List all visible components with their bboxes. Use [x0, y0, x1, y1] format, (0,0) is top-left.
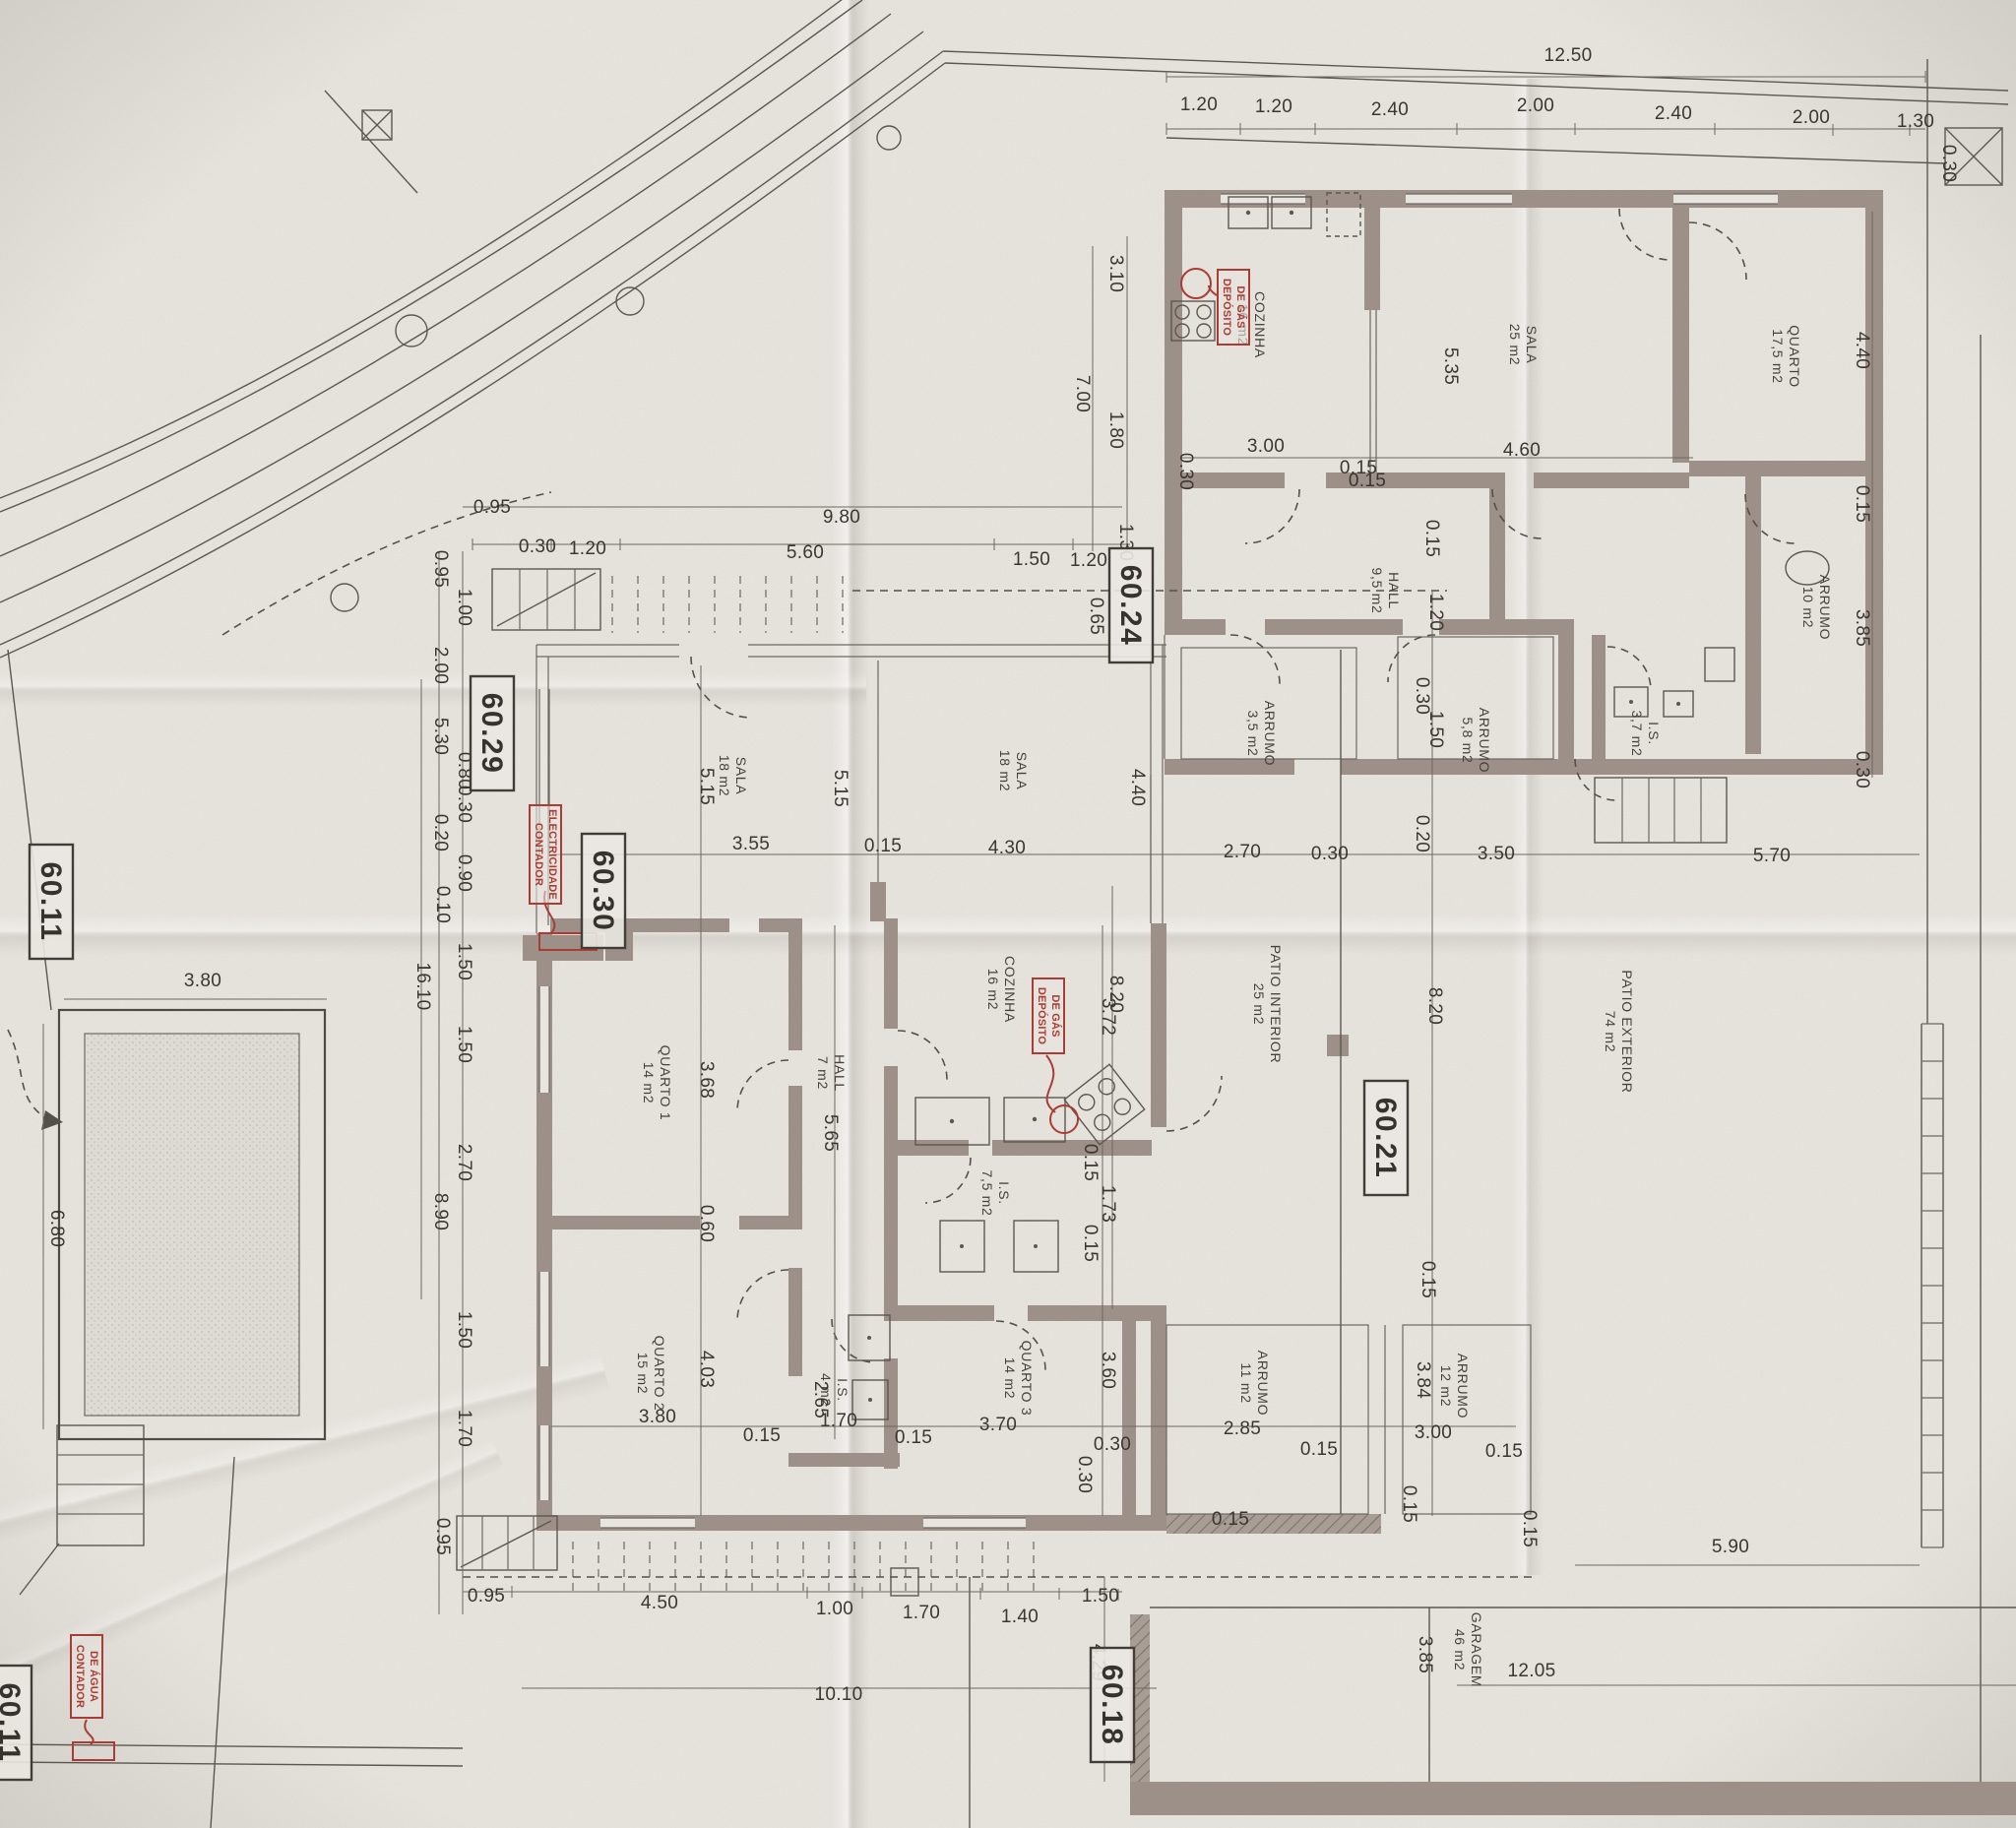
floor-plan-sheet: COZINHA16 m2SALA25 m2QUARTO17,5 m2HALL9,… — [0, 0, 2016, 1828]
red-annotation-line2: DE GÁS — [1234, 285, 1247, 328]
dimension-label: 4.30 — [988, 838, 1026, 858]
room-area: 10 m2 — [1800, 587, 1816, 628]
room-area: 3,7 m2 — [1629, 711, 1645, 757]
dimension-label: 5.90 — [1712, 1537, 1749, 1557]
dimension-label: 3.72 — [1098, 998, 1118, 1036]
room-area: 18 m2 — [717, 755, 732, 796]
dimension-label: 0.15 — [1300, 1439, 1338, 1460]
room-area: 16 m2 — [985, 969, 1001, 1010]
reference-marker-label: 60.11 — [34, 862, 67, 942]
room-name: HALL — [832, 1054, 848, 1092]
dimension-label: 4.03 — [696, 1351, 717, 1388]
dimension-label: 0.15 — [1399, 1485, 1419, 1523]
dimension-label: 4.60 — [1503, 440, 1541, 461]
dimension-label: 1.00 — [454, 589, 474, 626]
dimension-label: 1.20 — [1070, 550, 1107, 571]
dimension-label: 5.60 — [787, 542, 824, 563]
reference-marker: 60.29 — [471, 676, 514, 790]
reference-marker: 60.11 — [30, 845, 73, 959]
red-annotation-line1: CONTADOR — [533, 823, 544, 886]
dimension-label: 1.80 — [1105, 411, 1126, 449]
reference-marker-label: 60.18 — [1096, 1665, 1128, 1746]
dimension-label: 5.15 — [696, 768, 717, 805]
room-name: I.S. — [996, 1181, 1012, 1205]
dimension-label: 2.40 — [1655, 103, 1692, 124]
dimension-label: 0.30 — [1938, 145, 1959, 182]
dimension-label: 1.50 — [1082, 1586, 1119, 1607]
dimension-label: 2.00 — [1793, 107, 1830, 128]
dimension-label: 0.10 — [432, 886, 453, 923]
dimension-label: 3.80 — [184, 971, 221, 991]
dimension-label: 0.15 — [1080, 1144, 1101, 1181]
room-area: 14 m2 — [641, 1062, 657, 1103]
dimension-label: 0.90 — [454, 854, 474, 892]
dimension-label: 0.15 — [1212, 1509, 1249, 1530]
dimension-label: 10.10 — [814, 1684, 862, 1705]
dimension-label: 3.70 — [979, 1415, 1017, 1435]
dimension-label: 3.10 — [1105, 255, 1126, 292]
room-name: PATIO EXTERIOR — [1619, 970, 1635, 1093]
dimension-label: 1.50 — [1013, 549, 1050, 570]
room-name: ARRUMO — [1262, 701, 1278, 766]
dimension-label: 16.10 — [412, 962, 433, 1010]
dimension-label: 0.30 — [1094, 1434, 1131, 1455]
dimension-label: 2.85 — [1224, 1418, 1261, 1439]
dimension-label: 0.30 — [1852, 751, 1872, 788]
dimension-label: 5.70 — [1753, 846, 1791, 866]
dimension-label: 0.15 — [1519, 1510, 1540, 1547]
room-name: SALA — [733, 757, 749, 795]
room-area: 9,5 m2 — [1369, 568, 1385, 614]
dimension-label: 3.50 — [1478, 844, 1515, 864]
dimension-label: 5.30 — [430, 718, 451, 755]
dimension-label: 2.00 — [1517, 95, 1554, 116]
dimension-label: 0.15 — [895, 1427, 932, 1448]
dimension-label: 0.15 — [1080, 1225, 1101, 1262]
dimension-label: 3.00 — [1247, 436, 1285, 457]
red-annotation-line1: DEPÓSITO — [1036, 987, 1048, 1044]
dimension-label: 0.15 — [1485, 1441, 1523, 1462]
room-name: I.S. — [835, 1378, 850, 1402]
room-label: ARRUMO3,5 m2 — [1245, 701, 1278, 766]
dimension-label: 4.50 — [641, 1593, 678, 1613]
room-name: ARRUMO — [1455, 1354, 1471, 1418]
dimension-label: 2.40 — [1371, 99, 1409, 120]
dimension-label: 0.15 — [743, 1425, 781, 1446]
dimension-label: 3.55 — [732, 834, 770, 854]
reference-marker-label: 60.24 — [1114, 565, 1147, 647]
room-area: 15 m2 — [635, 1353, 651, 1394]
dimension-label: 3.68 — [696, 1061, 717, 1099]
dimension-label: 5.65 — [820, 1114, 841, 1152]
dimension-label: 1.20 — [1255, 96, 1292, 117]
red-annotation-line1: DEPÓSITO — [1221, 279, 1233, 336]
dimension-label: 8.20 — [1424, 987, 1445, 1025]
room-area: 17,5 m2 — [1770, 329, 1786, 384]
room-label: HALL9,5 m2 — [1369, 568, 1402, 614]
dimension-label: 1.70 — [820, 1411, 857, 1431]
floor-plan-drawing: COZINHA16 m2SALA25 m2QUARTO17,5 m2HALL9,… — [0, 0, 2016, 1828]
room-label: SALA18 m2 — [997, 750, 1030, 791]
room-area: 14 m2 — [1002, 1357, 1018, 1399]
dimension-label: 9.80 — [823, 507, 860, 528]
dimension-label: 1.30 — [1897, 111, 1934, 132]
reference-marker-label: 60.11 — [0, 1683, 26, 1763]
dimension-label: 1.20 — [569, 538, 606, 559]
reference-marker: 60.21 — [1364, 1081, 1408, 1195]
red-annotation: DEPÓSITODE GÁS — [1033, 978, 1064, 1053]
dimension-label: 3.00 — [1415, 1422, 1452, 1443]
dimension-label: 0.30 — [1311, 844, 1349, 864]
room-name: ARRUMO — [1817, 575, 1833, 640]
dimension-label: 1.00 — [816, 1599, 853, 1619]
red-annotation: CONTADORELECTRICIDADE — [530, 805, 561, 904]
dimension-label: 6.80 — [46, 1210, 67, 1247]
dimension-label: 8.90 — [430, 1193, 451, 1230]
room-name: SALA — [1524, 326, 1540, 364]
room-area: 25 m2 — [1507, 324, 1523, 365]
room-name: COZINHA — [1002, 956, 1018, 1023]
room-name: SALA — [1014, 752, 1030, 790]
dimension-label: 2.70 — [454, 1144, 474, 1181]
room-name: I.S. — [1646, 722, 1662, 745]
dimension-label: 7.00 — [1072, 375, 1093, 412]
room-name: QUARTO 1 — [658, 1045, 673, 1121]
room-name: PATIO INTERIOR — [1268, 945, 1284, 1064]
dimension-label: 1.20 — [1425, 594, 1446, 631]
dimension-label: 1.50 — [454, 1026, 474, 1063]
dimension-label: 0.95 — [468, 1586, 505, 1607]
room-name: QUARTO 2 — [652, 1336, 667, 1412]
reference-marker: 60.11 — [0, 1666, 31, 1780]
room-name: QUARTO — [1787, 325, 1802, 388]
dimension-label: 0.20 — [430, 814, 451, 851]
room-area: 18 m2 — [997, 750, 1013, 791]
room-area: 7,5 m2 — [979, 1170, 995, 1217]
dimension-label: 12.05 — [1507, 1661, 1555, 1681]
red-annotation: CONTADORDE ÁGUA — [71, 1635, 102, 1718]
reference-marker-label: 60.30 — [587, 851, 619, 932]
dimension-label: 3.85 — [1852, 609, 1872, 647]
dimension-label: 0.15 — [1421, 520, 1442, 557]
room-name: QUARTO 3 — [1019, 1341, 1035, 1417]
dimension-label: 3.84 — [1413, 1361, 1433, 1399]
room-area: 11 m2 — [1238, 1362, 1254, 1403]
dimension-label: 3.60 — [1098, 1352, 1118, 1389]
red-annotation-line2: DE ÁGUA — [88, 1651, 100, 1702]
dimension-label: 12.50 — [1543, 45, 1592, 66]
room-label: HALL7 m2 — [815, 1054, 848, 1092]
room-area: 7 m2 — [815, 1056, 831, 1090]
dimension-label: 2.00 — [430, 647, 451, 684]
dimension-label: 0.60 — [696, 1205, 717, 1242]
dimension-label: 0.95 — [432, 1518, 453, 1555]
red-annotation-line2: ELECTRICIDADE — [546, 809, 558, 900]
room-area: 5,8 m2 — [1460, 718, 1476, 764]
room-area: 3,5 m2 — [1245, 711, 1261, 757]
reference-marker: 60.30 — [582, 834, 625, 948]
room-name: ARRUMO — [1255, 1351, 1271, 1416]
dimension-label: 0.95 — [473, 497, 511, 518]
room-label: QUARTO17,5 m2 — [1770, 325, 1802, 388]
red-annotation-line1: CONTADOR — [74, 1645, 86, 1708]
dimension-label: 1.50 — [454, 1311, 474, 1349]
room-label: SALA18 m2 — [717, 755, 749, 796]
red-annotation: DEPÓSITODE GÁS — [1218, 270, 1249, 345]
room-area: 74 m2 — [1603, 1011, 1618, 1052]
reference-marker: 60.18 — [1091, 1648, 1134, 1762]
reference-marker-label: 60.29 — [475, 693, 508, 775]
dimension-label: 0.30 — [519, 536, 556, 557]
reference-marker-label: 60.21 — [1369, 1098, 1402, 1179]
dimension-label: 1.50 — [1425, 711, 1446, 748]
dimension-label: 0.15 — [1349, 471, 1386, 491]
room-label: SALA25 m2 — [1507, 324, 1540, 365]
dimension-label: 0.30 — [1175, 453, 1196, 490]
dimension-label: 0.65 — [1086, 598, 1106, 635]
room-area: 12 m2 — [1438, 1365, 1454, 1407]
dimension-label: 0.30 — [1074, 1456, 1095, 1493]
room-name: COZINHA — [1252, 291, 1268, 358]
dimension-label: 0.95 — [430, 550, 451, 588]
room-name: HALL — [1386, 572, 1402, 609]
dimension-label: 1.50 — [454, 943, 474, 980]
dimension-label: 1.70 — [903, 1603, 940, 1623]
dimension-label: 3.80 — [639, 1407, 676, 1427]
dimension-label: 1.40 — [1001, 1607, 1039, 1627]
room-area: 25 m2 — [1251, 983, 1267, 1025]
dimension-label: 0.15 — [1852, 485, 1872, 523]
dimension-label: 5.35 — [1440, 347, 1461, 385]
dimension-label: 4.40 — [1852, 332, 1872, 369]
dimension-label: 3.85 — [1415, 1636, 1435, 1673]
room-name: ARRUMO — [1477, 708, 1492, 773]
dimension-label: 5.15 — [830, 770, 850, 807]
room-name: GARAGEM — [1469, 1612, 1484, 1687]
reference-marker: 60.24 — [1109, 548, 1153, 662]
room-label: ARRUMO5,8 m2 — [1460, 708, 1492, 773]
dimension-label: 1.70 — [454, 1410, 474, 1447]
dimension-label: 0.15 — [864, 836, 902, 856]
dimension-label: 4.40 — [1127, 769, 1148, 806]
dimension-label: 1.73 — [1098, 1185, 1118, 1223]
dimension-label: 0.15 — [1417, 1261, 1438, 1298]
dimension-label: 0.30 — [1412, 677, 1432, 715]
room-area: 46 m2 — [1452, 1629, 1468, 1670]
dimension-label: 0.20 — [1412, 815, 1432, 852]
dimension-label: 1.20 — [1180, 95, 1218, 115]
red-annotation-line2: DE GÁS — [1049, 994, 1062, 1037]
dimension-label: 2.70 — [1224, 842, 1261, 862]
